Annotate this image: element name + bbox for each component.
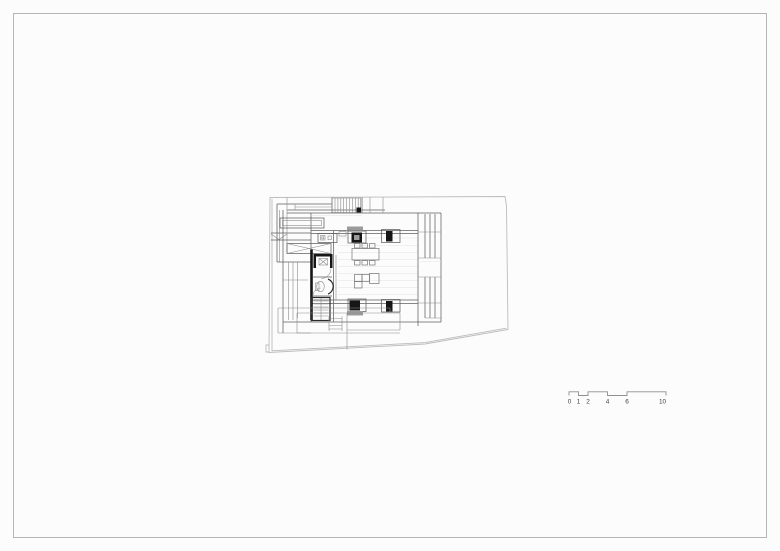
wc-room [313, 277, 333, 296]
chimney-column-nw [339, 227, 366, 244]
louver-band-east [418, 214, 441, 318]
scale-tick-label-6: 6 [625, 399, 629, 406]
dining-set [352, 244, 379, 266]
ramp-cross-hatch [287, 244, 331, 254]
dining-chair [362, 261, 368, 266]
dining-chair [370, 261, 376, 266]
scale-tick-label-4: 4 [606, 399, 610, 406]
scale-bar-line [569, 392, 666, 396]
skylight-strip [280, 218, 324, 228]
driveway-lines [289, 262, 298, 320]
curved-wall [328, 279, 333, 294]
scale-tick-label-0: 0 [568, 399, 572, 406]
fireplace-room [314, 254, 333, 279]
sink [328, 236, 332, 240]
dining-table [352, 249, 379, 261]
stair-landing-mark [357, 208, 362, 213]
garden-stair [329, 317, 342, 332]
column-ne [382, 230, 401, 243]
floor-joint-lines [338, 238, 418, 295]
drawing-sheet: 0 1 2 4 6 10 [0, 0, 780, 551]
site-boundary [266, 197, 508, 353]
scale-tick-label-2: 2 [586, 399, 590, 406]
sheet-border [14, 14, 767, 538]
south-terrace [278, 308, 400, 350]
floor-plan-drawing: 0 1 2 4 6 10 [0, 0, 780, 551]
service-core [310, 250, 333, 321]
stair-treads [329, 319, 342, 330]
cooktop [321, 236, 326, 241]
skylight-strip-inner [283, 221, 322, 226]
interior-walls [311, 213, 418, 326]
scale-bar: 0 1 2 4 6 10 [568, 392, 667, 406]
scale-tick-label-10: 10 [659, 399, 667, 406]
gutter-v-mark [271, 234, 287, 240]
kitchen-counter [318, 234, 337, 243]
dining-chair [355, 261, 361, 266]
internal-stair [312, 298, 331, 321]
scale-tick-label-1: 1 [577, 399, 581, 406]
door-swing-arc [313, 288, 321, 296]
column-se [382, 300, 401, 313]
